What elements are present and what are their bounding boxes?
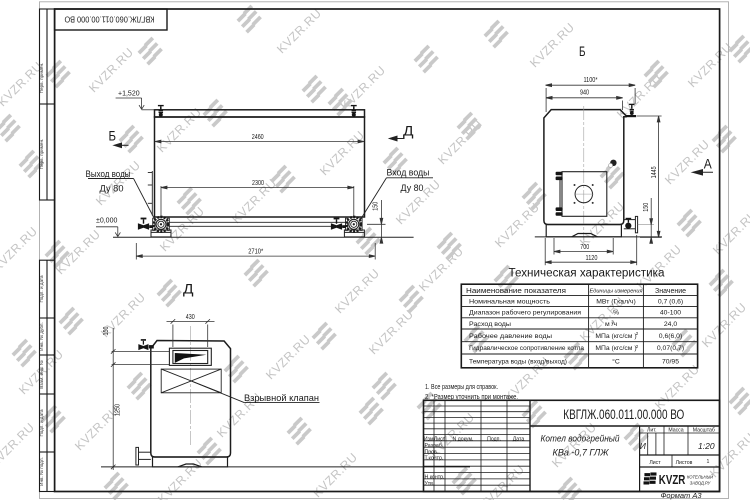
svg-text:1:20: 1:20 <box>698 441 715 451</box>
svg-text:2710*: 2710* <box>248 248 263 255</box>
svg-text:Взам. инв. №: Взам. инв. № <box>39 360 44 389</box>
svg-text:Лист: Лист <box>649 460 661 466</box>
svg-text:70/95: 70/95 <box>662 358 679 365</box>
svg-text:KVZR.RU: KVZR.RU <box>263 332 313 382</box>
svg-text:Инв. № дубл.: Инв. № дубл. <box>39 322 44 350</box>
svg-text:°С: °С <box>612 357 620 365</box>
svg-text:1445: 1445 <box>651 166 658 178</box>
svg-text:KVZR.RU: KVZR.RU <box>86 45 136 95</box>
svg-text:Подп.: Подп. <box>487 437 501 443</box>
svg-text:Выход воды: Выход воды <box>86 169 131 179</box>
svg-text:МПа (кгс/см ): МПа (кгс/см ) <box>595 333 636 340</box>
svg-text:Гидравлическое сопротивление к: Гидравлическое сопротивление котла <box>469 345 584 352</box>
svg-text:1250: 1250 <box>115 404 122 416</box>
svg-text:КОТЕЛЬНЫЙ: КОТЕЛЬНЫЙ <box>687 475 713 480</box>
svg-text:Наименование показателя: Наименование показателя <box>466 288 566 295</box>
svg-text:Лист: Лист <box>434 437 446 443</box>
svg-text:KVZR.RU: KVZR.RU <box>710 207 750 257</box>
svg-text:1. Все размеры для справок.: 1. Все размеры для справок. <box>425 382 498 391</box>
svg-text:KVZR.RU: KVZR.RU <box>527 20 577 70</box>
svg-text:Т.контр.: Т.контр. <box>425 456 444 462</box>
svg-text:24,0: 24,0 <box>664 321 677 328</box>
svg-text:940: 940 <box>580 89 589 96</box>
svg-text:KVZR.RU: KVZR.RU <box>0 224 40 274</box>
svg-text:KVZR: KVZR <box>659 472 686 487</box>
svg-text:Н.контр.: Н.контр. <box>425 475 445 481</box>
svg-text:1120: 1120 <box>586 255 598 262</box>
svg-text:KVZR.RU: KVZR.RU <box>317 128 367 178</box>
svg-text:ЗАВОД.РУ: ЗАВОД.РУ <box>690 481 712 486</box>
svg-text:Листов: Листов <box>676 460 693 466</box>
svg-text:2460: 2460 <box>252 134 264 141</box>
svg-text:KVZR.RU: KVZR.RU <box>0 420 37 470</box>
svg-text:150: 150 <box>372 202 379 211</box>
svg-text:KVZR.RU: KVZR.RU <box>477 462 527 500</box>
svg-text:Б: Б <box>109 128 117 144</box>
svg-text:150: 150 <box>103 326 110 335</box>
svg-text:Инв. № подл.: Инв. № подл. <box>39 457 44 486</box>
svg-text:Техническая характеристика: Техническая характеристика <box>509 268 666 280</box>
svg-text:KVZR.RU: KVZR.RU <box>549 420 599 470</box>
svg-text:Расход воды: Расход воды <box>469 321 511 328</box>
svg-text:Рабочее давление воды: Рабочее давление воды <box>469 332 552 340</box>
svg-text:Пров.: Пров. <box>425 449 439 455</box>
svg-text:Утв.: Утв. <box>425 481 435 487</box>
svg-text:2: 2 <box>636 344 639 349</box>
svg-text:Температура воды (вход/выход): Температура воды (вход/выход) <box>469 358 567 365</box>
svg-text:2300: 2300 <box>252 180 264 187</box>
svg-text:KVZR.RU: KVZR.RU <box>274 6 324 56</box>
svg-text:150: 150 <box>643 203 650 212</box>
svg-text:1: 1 <box>707 459 710 465</box>
svg-text:2: 2 <box>636 331 639 336</box>
svg-text:0,7 (0,6): 0,7 (0,6) <box>658 298 683 305</box>
svg-text:%: % <box>613 310 619 317</box>
svg-text:МПа (кгс/см ): МПа (кгс/см ) <box>595 345 636 352</box>
svg-text:±0,000: ±0,000 <box>96 218 117 225</box>
svg-text:Б: Б <box>579 43 586 59</box>
svg-text:KVZR.RU: KVZR.RU <box>366 307 416 357</box>
svg-text:Подп. и дата: Подп. и дата <box>39 275 44 303</box>
svg-text:Диапазон рабочего регулировани: Диапазон рабочего регулирования <box>469 309 581 317</box>
svg-text:0,6(6,0): 0,6(6,0) <box>659 333 682 340</box>
svg-text:KVZR.RU: KVZR.RU <box>699 300 749 350</box>
svg-text:Лит.: Лит. <box>647 427 657 433</box>
svg-text:KVZR.RU: KVZR.RU <box>332 266 382 316</box>
svg-text:0,07(0,7): 0,07(0,7) <box>657 345 684 352</box>
svg-text:Д: Д <box>403 123 414 139</box>
svg-text:Разраб.: Разраб. <box>425 443 444 449</box>
svg-text:40-100: 40-100 <box>660 310 681 317</box>
svg-text:Масса: Масса <box>668 427 683 433</box>
svg-text:KVZR.RU: KVZR.RU <box>310 450 360 500</box>
svg-text:Вход воды: Вход воды <box>387 167 430 177</box>
svg-text:И: И <box>640 441 647 451</box>
svg-text:Значение: Значение <box>655 288 686 295</box>
svg-text:KVZR.RU: KVZR.RU <box>157 204 207 254</box>
svg-text:Масштаб: Масштаб <box>693 427 715 433</box>
svg-text:Единицы измерения: Единицы измерения <box>590 289 643 295</box>
svg-text:KVZR.RU: KVZR.RU <box>416 244 466 294</box>
svg-text:Ду 80: Ду 80 <box>401 183 424 193</box>
svg-text:N докум.: N докум. <box>453 437 474 443</box>
svg-text:КВГЛЖ.060.011.00.000 ВО: КВГЛЖ.060.011.00.000 ВО <box>563 407 684 422</box>
svg-text:KVZR.RU: KVZR.RU <box>614 71 664 121</box>
svg-text:КВа -0,7 ГЛЖ: КВа -0,7 ГЛЖ <box>553 448 610 459</box>
svg-text:KVZR.RU: KVZR.RU <box>652 362 702 412</box>
svg-text:Д: Д <box>183 281 194 297</box>
svg-text:Ду 80: Ду 80 <box>100 183 124 193</box>
svg-text:Номинальная мощность: Номинальная мощность <box>469 298 550 305</box>
svg-text:Перв. примен.: Перв. примен. <box>39 139 44 170</box>
svg-text:МВт (Гкал/ч): МВт (Гкал/ч) <box>596 298 635 305</box>
svg-text:KVZR.RU: KVZR.RU <box>155 456 205 500</box>
svg-text:А: А <box>704 156 713 172</box>
svg-text:1100*: 1100* <box>584 77 598 84</box>
svg-text:Формат А3: Формат А3 <box>660 491 702 500</box>
svg-text:+1,520: +1,520 <box>118 91 140 98</box>
svg-text:Котел водогрейный: Котел водогрейный <box>541 434 621 445</box>
svg-text:Изм: Изм <box>424 437 434 443</box>
svg-text:Перв. примен.: Перв. примен. <box>39 63 44 94</box>
svg-text:Подп. и дата: Подп. и дата <box>39 409 44 437</box>
svg-text:430: 430 <box>186 314 195 321</box>
svg-text:Дата: Дата <box>513 437 525 443</box>
svg-text:700: 700 <box>580 244 589 251</box>
svg-text:КВГЛЖ.060.011.00.000 ВО: КВГЛЖ.060.011.00.000 ВО <box>64 15 154 25</box>
svg-text:KVZR.RU: KVZR.RU <box>685 40 735 90</box>
